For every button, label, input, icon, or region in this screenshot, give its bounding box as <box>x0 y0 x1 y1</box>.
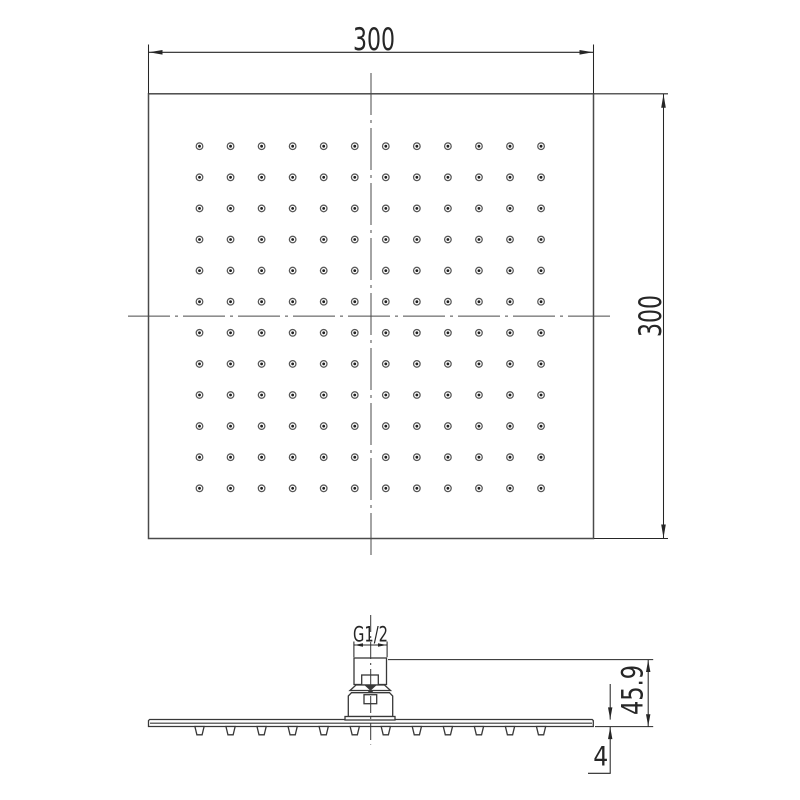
nozzle-dot-center <box>322 331 325 334</box>
nozzle-dot-center <box>415 425 418 428</box>
nozzle-dot-center <box>353 363 356 366</box>
nozzle-dot-center <box>291 300 294 303</box>
nozzle-cone <box>474 727 483 735</box>
nozzle-dot-center <box>540 207 543 210</box>
nozzle-dot-center <box>509 363 512 366</box>
nozzle-dot-center <box>384 331 387 334</box>
nozzle-dot-center <box>540 331 543 334</box>
nozzle-dot-center <box>229 300 232 303</box>
nozzle-dot-center <box>447 394 450 397</box>
nozzle-dot-center <box>509 176 512 179</box>
arrowhead-top <box>661 94 666 108</box>
nozzle-dot-center <box>509 394 512 397</box>
nozzle-dot-center <box>198 425 201 428</box>
nozzle-dot-center <box>384 300 387 303</box>
nozzle-dot-center <box>384 207 387 210</box>
base-flange <box>345 717 395 721</box>
nozzle-dot-center <box>353 331 356 334</box>
nozzle-dot-center <box>478 363 481 366</box>
nozzle-dot-center <box>260 176 263 179</box>
nozzle-cone <box>257 727 266 735</box>
height-dimension-label: 300 <box>633 295 669 337</box>
nozzle-dot-center <box>291 238 294 241</box>
nozzle-dot-center <box>540 300 543 303</box>
nozzle-dot-center <box>384 238 387 241</box>
nozzle-dot-center <box>229 207 232 210</box>
nozzle-dot-center <box>509 425 512 428</box>
nozzle-dot-center <box>353 269 356 272</box>
nozzle-dot-center <box>198 269 201 272</box>
nozzle-dot-center <box>540 394 543 397</box>
nozzle-dot-center <box>260 456 263 459</box>
nozzle-dot-center <box>540 425 543 428</box>
nozzle-dot-center <box>478 394 481 397</box>
nozzle-dot-center <box>447 207 450 210</box>
arrowhead-down <box>608 707 612 719</box>
nozzle-dot-center <box>198 300 201 303</box>
nozzle-dot-center <box>322 300 325 303</box>
nozzle-dot-center <box>415 145 418 148</box>
arrowhead-bottom <box>646 714 650 726</box>
nozzle-dot-center <box>353 300 356 303</box>
nozzle-dot-center <box>198 394 201 397</box>
nozzle-dot-center <box>322 238 325 241</box>
nozzle-dot-center <box>291 176 294 179</box>
nozzle-dot-center <box>478 331 481 334</box>
nozzle-cone <box>381 727 390 735</box>
nozzle-dot-center <box>447 176 450 179</box>
nozzle-dot-center <box>478 238 481 241</box>
nozzle-dot-center <box>291 145 294 148</box>
nozzle-dot-center <box>478 300 481 303</box>
nozzle-dot-center <box>447 487 450 490</box>
nozzle-dot-center <box>198 363 201 366</box>
nozzle-dot-center <box>291 425 294 428</box>
nozzle-dot-center <box>478 425 481 428</box>
nozzle-dot-center <box>447 363 450 366</box>
nozzle-dot-center <box>229 176 232 179</box>
nozzle-cone <box>319 727 328 735</box>
nozzle-dot-grid <box>196 143 544 492</box>
nozzle-dot-center <box>384 269 387 272</box>
nozzle-dot-center <box>384 145 387 148</box>
width-dimension-label: 300 <box>353 22 395 58</box>
nozzle-dot-center <box>229 456 232 459</box>
nozzle-dot-center <box>384 363 387 366</box>
nozzle-dot-center <box>540 176 543 179</box>
nozzle-dot-center <box>447 456 450 459</box>
nozzle-dot-center <box>198 487 201 490</box>
nozzle-dot-center <box>260 425 263 428</box>
nozzle-dot-center <box>509 300 512 303</box>
nozzle-dot-center <box>322 363 325 366</box>
nozzle-dot-center <box>353 176 356 179</box>
nozzle-dot-center <box>260 145 263 148</box>
nozzle-dot-center <box>447 300 450 303</box>
nozzle-dot-center <box>291 331 294 334</box>
nozzle-dot-center <box>540 269 543 272</box>
nozzle-dot-center <box>229 331 232 334</box>
nozzle-dot-center <box>322 425 325 428</box>
nozzle-dot-center <box>540 487 543 490</box>
nozzle-dot-center <box>509 269 512 272</box>
nozzle-dot-center <box>353 207 356 210</box>
arrowhead-right <box>580 50 594 55</box>
nozzle-dot-center <box>415 363 418 366</box>
nozzle-dot-center <box>322 207 325 210</box>
thread-dimension-label: G1/2 <box>353 622 388 646</box>
nozzle-dot-center <box>540 145 543 148</box>
nozzle-dot-center <box>447 425 450 428</box>
nozzle-cone <box>536 727 545 735</box>
nozzle-cone <box>350 727 359 735</box>
nozzle-dot-center <box>384 394 387 397</box>
arrowhead-bottom <box>661 525 666 539</box>
drawing-canvas: 300 300 <box>0 0 800 800</box>
nozzle-dot-center <box>384 487 387 490</box>
arrowhead-left <box>149 50 163 55</box>
nozzle-dot-center <box>353 145 356 148</box>
nozzle-dot-center <box>384 456 387 459</box>
nozzle-dot-center <box>229 425 232 428</box>
nozzle-dot-center <box>198 145 201 148</box>
plate-thickness-dimension-label: 4 <box>593 742 608 773</box>
nozzle-dot-center <box>415 394 418 397</box>
nozzle-dot-center <box>478 269 481 272</box>
arrowhead-up <box>608 727 612 739</box>
nozzle-dot-center <box>260 363 263 366</box>
total-height-dimension: 45.9 <box>388 660 653 727</box>
nozzle-dot-center <box>415 487 418 490</box>
nozzle-cone <box>412 727 421 735</box>
nozzle-dot-center <box>509 207 512 210</box>
nozzle-dot-center <box>229 487 232 490</box>
nozzle-dot-center <box>291 456 294 459</box>
nozzle-cone <box>288 727 297 735</box>
nozzle-dot-center <box>478 207 481 210</box>
nozzle-dot-center <box>415 300 418 303</box>
nozzle-dot-center <box>353 456 356 459</box>
plate-thickness-dimension: 4 <box>588 684 612 773</box>
pipe-nipple <box>362 675 379 685</box>
nozzle-cone <box>505 727 514 735</box>
nozzle-dot-center <box>322 269 325 272</box>
shower-head-technical-drawing: 300 300 <box>0 0 800 800</box>
nozzle-dot-center <box>540 456 543 459</box>
nozzle-dot-center <box>415 456 418 459</box>
nozzle-dot-center <box>415 269 418 272</box>
nozzle-dot-center <box>540 363 543 366</box>
nozzle-dot-center <box>447 269 450 272</box>
nozzle-dot-center <box>229 363 232 366</box>
nozzle-dot-center <box>291 394 294 397</box>
nozzle-dot-center <box>229 394 232 397</box>
nozzle-dot-center <box>415 207 418 210</box>
nozzle-dot-center <box>198 456 201 459</box>
nozzle-dot-center <box>322 456 325 459</box>
nozzle-dot-center <box>198 207 201 210</box>
nozzle-dot-center <box>322 394 325 397</box>
nozzle-cone <box>195 727 204 735</box>
nozzle-dot-center <box>291 207 294 210</box>
nozzle-dot-center <box>384 176 387 179</box>
nozzle-dot-center <box>322 176 325 179</box>
nozzle-dot-center <box>260 207 263 210</box>
nozzle-dot-center <box>260 487 263 490</box>
nozzle-dot-center <box>353 425 356 428</box>
nozzle-dot-center <box>198 238 201 241</box>
nozzle-dot-center <box>322 145 325 148</box>
nozzle-dot-center <box>291 269 294 272</box>
nozzle-dot-center <box>229 238 232 241</box>
nozzle-dot-center <box>509 145 512 148</box>
nozzle-dot-center <box>478 176 481 179</box>
nozzle-dot-center <box>353 394 356 397</box>
nozzle-dot-center <box>353 487 356 490</box>
nozzle-dot-center <box>260 238 263 241</box>
nozzle-dot-center <box>229 145 232 148</box>
nozzle-dot-center <box>291 487 294 490</box>
nozzle-dot-center <box>384 425 387 428</box>
inlet-connector <box>345 658 395 720</box>
nozzle-dot-center <box>447 145 450 148</box>
nozzle-dot-center <box>509 487 512 490</box>
top-view: 300 300 <box>128 22 669 559</box>
nozzle-dot-center <box>415 331 418 334</box>
nozzle-dot-center <box>478 487 481 490</box>
nozzle-dot-center <box>540 238 543 241</box>
nozzle-dot-center <box>447 331 450 334</box>
nozzle-dot-center <box>509 331 512 334</box>
nozzle-dot-center <box>198 176 201 179</box>
nozzle-dot-center <box>478 456 481 459</box>
nozzle-dot-center <box>322 487 325 490</box>
nozzle-dot-center <box>229 269 232 272</box>
nozzle-cone <box>443 727 452 735</box>
nozzle-dot-center <box>291 363 294 366</box>
nozzle-dot-center <box>260 269 263 272</box>
nozzle-dot-center <box>353 238 356 241</box>
side-view: G1/2 45.9 4 <box>149 615 654 773</box>
nozzle-dot-center <box>415 176 418 179</box>
nozzle-dot-center <box>447 238 450 241</box>
nozzle-dot-center <box>260 394 263 397</box>
nozzle-dot-center <box>260 300 263 303</box>
nozzle-dot-center <box>198 331 201 334</box>
nozzle-dot-center <box>260 331 263 334</box>
nozzle-dot-center <box>509 456 512 459</box>
nozzle-dot-center <box>478 145 481 148</box>
nozzle-dot-center <box>509 238 512 241</box>
total-height-dimension-label: 45.9 <box>616 665 650 715</box>
nozzle-dot-center <box>415 238 418 241</box>
nozzle-cone <box>226 727 235 735</box>
